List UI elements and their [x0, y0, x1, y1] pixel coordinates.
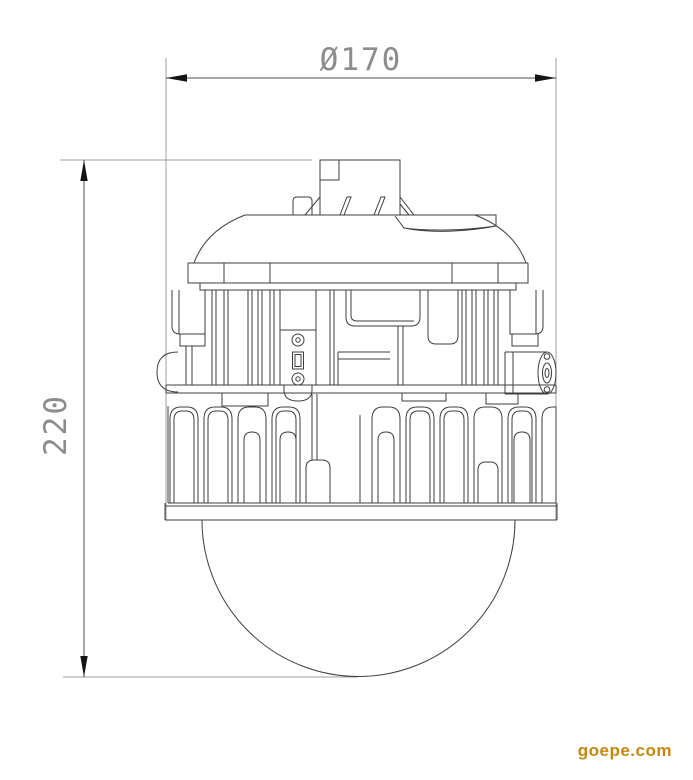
glass-dome — [202, 520, 515, 676]
screw-top — [292, 334, 304, 346]
bottom-flange — [165, 503, 557, 520]
stem-side-plate — [366, 215, 496, 231]
technical-drawing: Ø170 220 — [0, 0, 693, 780]
cable-gland — [505, 352, 556, 394]
watermark-goepe: goepe.com — [578, 741, 672, 761]
slot-inner — [295, 355, 301, 367]
lamp-front-view — [157, 160, 557, 676]
gland-face-mid — [543, 363, 552, 383]
upper-right-fin — [428, 290, 458, 344]
gland-face-hole — [545, 369, 549, 378]
top-cover-outline — [188, 215, 528, 290]
screw-bottom — [292, 373, 304, 385]
drawing-sheet: Ø170 220 — [0, 0, 693, 780]
dimension-height-label: 220 — [38, 394, 74, 456]
top-cover-seams — [224, 263, 498, 283]
lower-heatsink — [168, 394, 556, 503]
mid-flange — [166, 385, 556, 406]
left-boss — [157, 352, 178, 392]
top-cover — [188, 215, 528, 290]
arrowhead-up — [80, 160, 87, 181]
arrowhead-left — [166, 74, 187, 81]
arrowhead-down — [80, 656, 87, 677]
center-box — [330, 290, 420, 385]
upper-fin-lines — [212, 290, 498, 385]
screw-bottom-center — [296, 377, 300, 381]
upper-left-block — [172, 290, 205, 385]
dimension-diameter-label: Ø170 — [320, 42, 403, 78]
mounting-stem — [293, 160, 496, 231]
gland-ear-bottom — [544, 387, 550, 393]
upper-heatsink — [157, 290, 556, 401]
lower-fins-nested — [244, 394, 530, 503]
arrowhead-right — [535, 74, 556, 81]
gland-face-outer — [538, 352, 556, 394]
upper-right-block — [510, 290, 543, 346]
gland-ear-top — [544, 354, 550, 360]
stem-outline — [293, 160, 414, 215]
terminal-bracket — [280, 290, 316, 401]
screw-top-center — [296, 338, 300, 342]
